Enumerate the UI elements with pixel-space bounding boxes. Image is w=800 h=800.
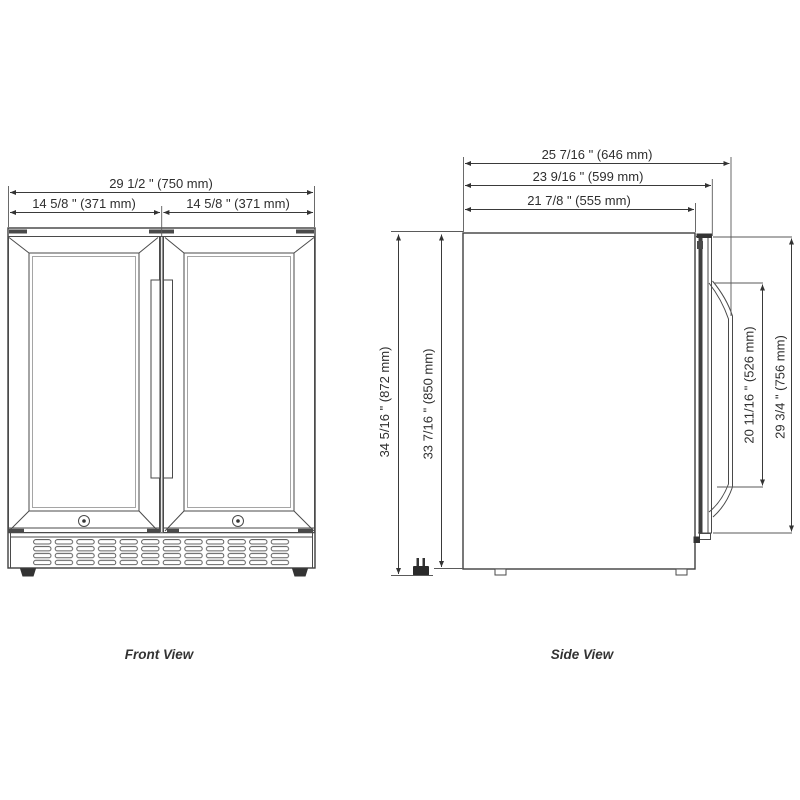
side-view-drawing [413, 233, 733, 576]
bottom-hinge-center-right [167, 529, 179, 533]
dim-body-depth: 21 7/8 " (555 mm) [527, 193, 631, 208]
bottom-hinge-right [298, 529, 313, 533]
side-view-dimensions: 25 7/16 " (646 mm) 23 9/16 " (599 mm) 21… [377, 147, 792, 576]
door-bottom-bracket [694, 537, 701, 544]
dim-right-door-width: 14 5/8 " (371 mm) [186, 196, 290, 211]
dim-overall-depth: 25 7/16 " (646 mm) [542, 147, 653, 162]
door-top-cap [697, 234, 713, 239]
front-view-drawing [8, 228, 315, 577]
bottom-hinge-center-left [147, 529, 159, 533]
appliance-dimension-drawing: 29 1/2 " (750 mm) 14 5/8 " (371 mm) 14 5… [0, 0, 800, 800]
dim-left-door-width: 14 5/8 " (371 mm) [32, 196, 136, 211]
right-door [164, 237, 315, 533]
right-door-glass [184, 253, 294, 511]
top-hinge-left [9, 230, 27, 234]
side-door-handle [709, 281, 733, 517]
dimension-diagram-page: { "front_view": { "label": "Front View",… [0, 0, 800, 800]
dim-body-height: 33 7/16 " (850 mm) [421, 349, 436, 460]
side-front-foot [495, 569, 506, 575]
left-door [9, 237, 160, 533]
dim-depth-with-door: 23 9/16 " (599 mm) [533, 169, 644, 184]
front-cabinet-outline [8, 228, 315, 568]
front-view-label: Front View [125, 647, 195, 662]
dim-door-height: 29 3/4 " (756 mm) [773, 335, 788, 439]
side-cabinet-outline [463, 233, 695, 569]
dim-overall-width: 29 1/2 " (750 mm) [109, 176, 213, 191]
vent-grille [11, 533, 313, 568]
dim-handle-length: 20 11/16 " (526 mm) [742, 326, 757, 443]
left-door-handle [151, 280, 160, 478]
dim-overall-height: 34 5/16 " (872 mm) [377, 347, 392, 458]
left-door-glass [29, 253, 139, 511]
side-rear-foot [676, 569, 687, 575]
power-plug-icon [413, 558, 429, 576]
front-left-foot [20, 569, 36, 577]
right-door-handle [164, 280, 173, 478]
front-right-foot [292, 569, 308, 577]
side-door [694, 234, 713, 544]
front-view-dimensions: 29 1/2 " (750 mm) 14 5/8 " (371 mm) 14 5… [9, 176, 315, 236]
top-hinge-right [296, 230, 314, 234]
left-door-lock [79, 516, 90, 527]
right-door-lock [233, 516, 244, 527]
bottom-hinge-left [9, 529, 24, 533]
side-view-label: Side View [551, 647, 615, 662]
